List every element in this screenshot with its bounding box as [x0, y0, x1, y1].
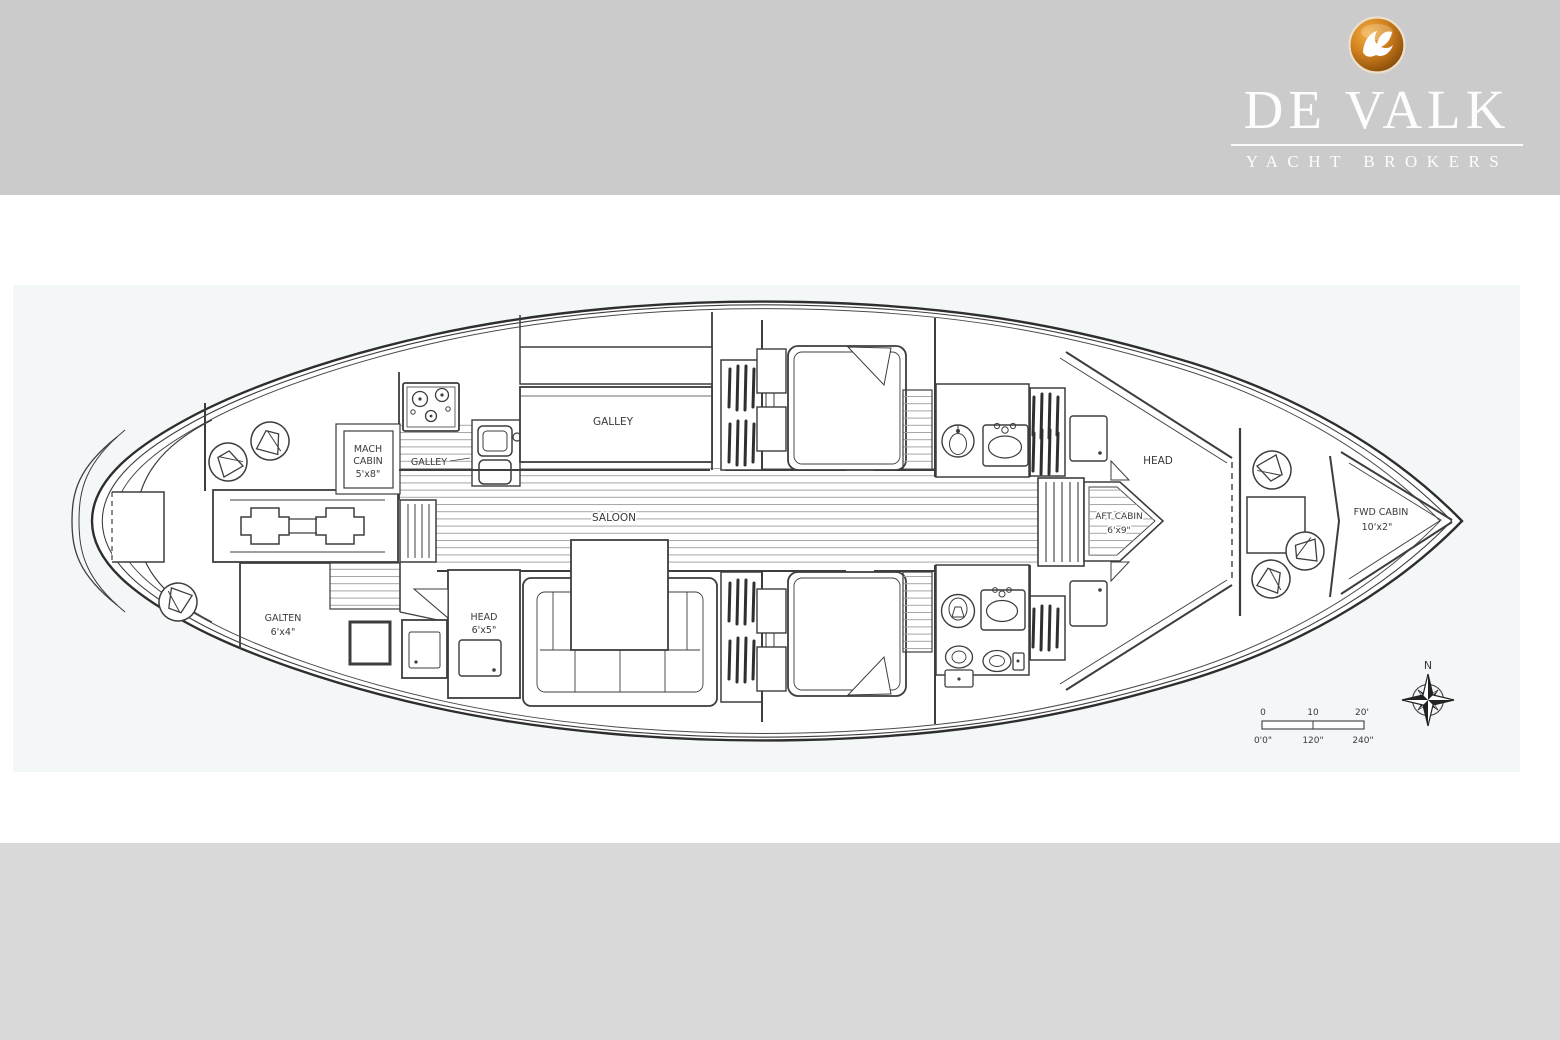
falcon-icon [1348, 16, 1406, 74]
room-label: AFT CABIN [1095, 512, 1143, 522]
nightstand [757, 647, 786, 691]
room-label: HEAD [471, 612, 498, 623]
footer-band: SCANBOAT.COM [0, 843, 1560, 1040]
room-label: GALLEY [593, 416, 634, 428]
nightstand [757, 349, 786, 393]
room-label: CABIN [353, 456, 383, 467]
mast-locker [400, 500, 436, 562]
engine-room [213, 490, 398, 562]
room-label: HEAD [1143, 455, 1173, 467]
shower-icon [1070, 581, 1107, 626]
room-label: GALTEN [265, 613, 302, 624]
brand-subtitle: YACHT BROKERS [1187, 152, 1560, 172]
room-dimension: 6'x9" [1107, 526, 1130, 536]
scale-bar: 0 10 20' 0'0" 120" 240" [1254, 708, 1374, 746]
listing-photo-page: DE VALK YACHT BROKERS [0, 0, 1560, 1040]
yacht-floor-plan: MACH CABIN 5'x8" GALL [13, 285, 1520, 772]
bidet-icon [942, 595, 975, 628]
scale-tick-label: 0'0" [1254, 736, 1272, 746]
scale-tick-label: 20' [1355, 708, 1369, 718]
header-band: DE VALK YACHT BROKERS [0, 0, 1560, 195]
room-dimension: 10'x2" [1362, 522, 1393, 533]
scale-tick-label: 0 [1260, 708, 1266, 718]
brand-divider [1231, 144, 1523, 146]
room-label: FWD CABIN [1354, 507, 1409, 518]
room-label: GALLEY [411, 457, 447, 468]
steps [903, 390, 932, 470]
room-dimension: 5'x8" [356, 469, 381, 480]
shower-icon [1070, 416, 1107, 461]
companionway-stairs [1038, 478, 1084, 566]
saloon-table [571, 540, 668, 650]
brand-name: DE VALK [1187, 82, 1560, 137]
toilet-icon [983, 651, 1024, 672]
toilet-icon [942, 425, 974, 457]
stove-icon [403, 383, 459, 431]
scale-tick-label: 240" [1352, 736, 1373, 746]
washbasin-icon [981, 588, 1025, 630]
nightstand [757, 407, 786, 451]
room-label: MACH [354, 444, 382, 455]
room-dimension: 6'x5" [472, 625, 497, 636]
steps [330, 563, 400, 609]
brand-block: DE VALK YACHT BROKERS [1187, 16, 1560, 172]
washbasin-icon [983, 423, 1028, 466]
room-dimension: 6'x4" [271, 627, 296, 638]
nightstand [757, 589, 786, 633]
compass-rose-icon: N [1402, 659, 1454, 726]
steps [903, 572, 932, 652]
scale-tick-label: 10 [1307, 708, 1319, 718]
bathroom-top [936, 384, 1030, 477]
room-label: SALOON [592, 512, 636, 524]
locker [350, 622, 390, 664]
bathroom-bottom [936, 565, 1030, 687]
floor-plan-panel: MACH CABIN 5'x8" GALL [13, 285, 1520, 772]
scale-tick-label: 120" [1302, 736, 1323, 746]
compass-north-label: N [1424, 659, 1432, 672]
